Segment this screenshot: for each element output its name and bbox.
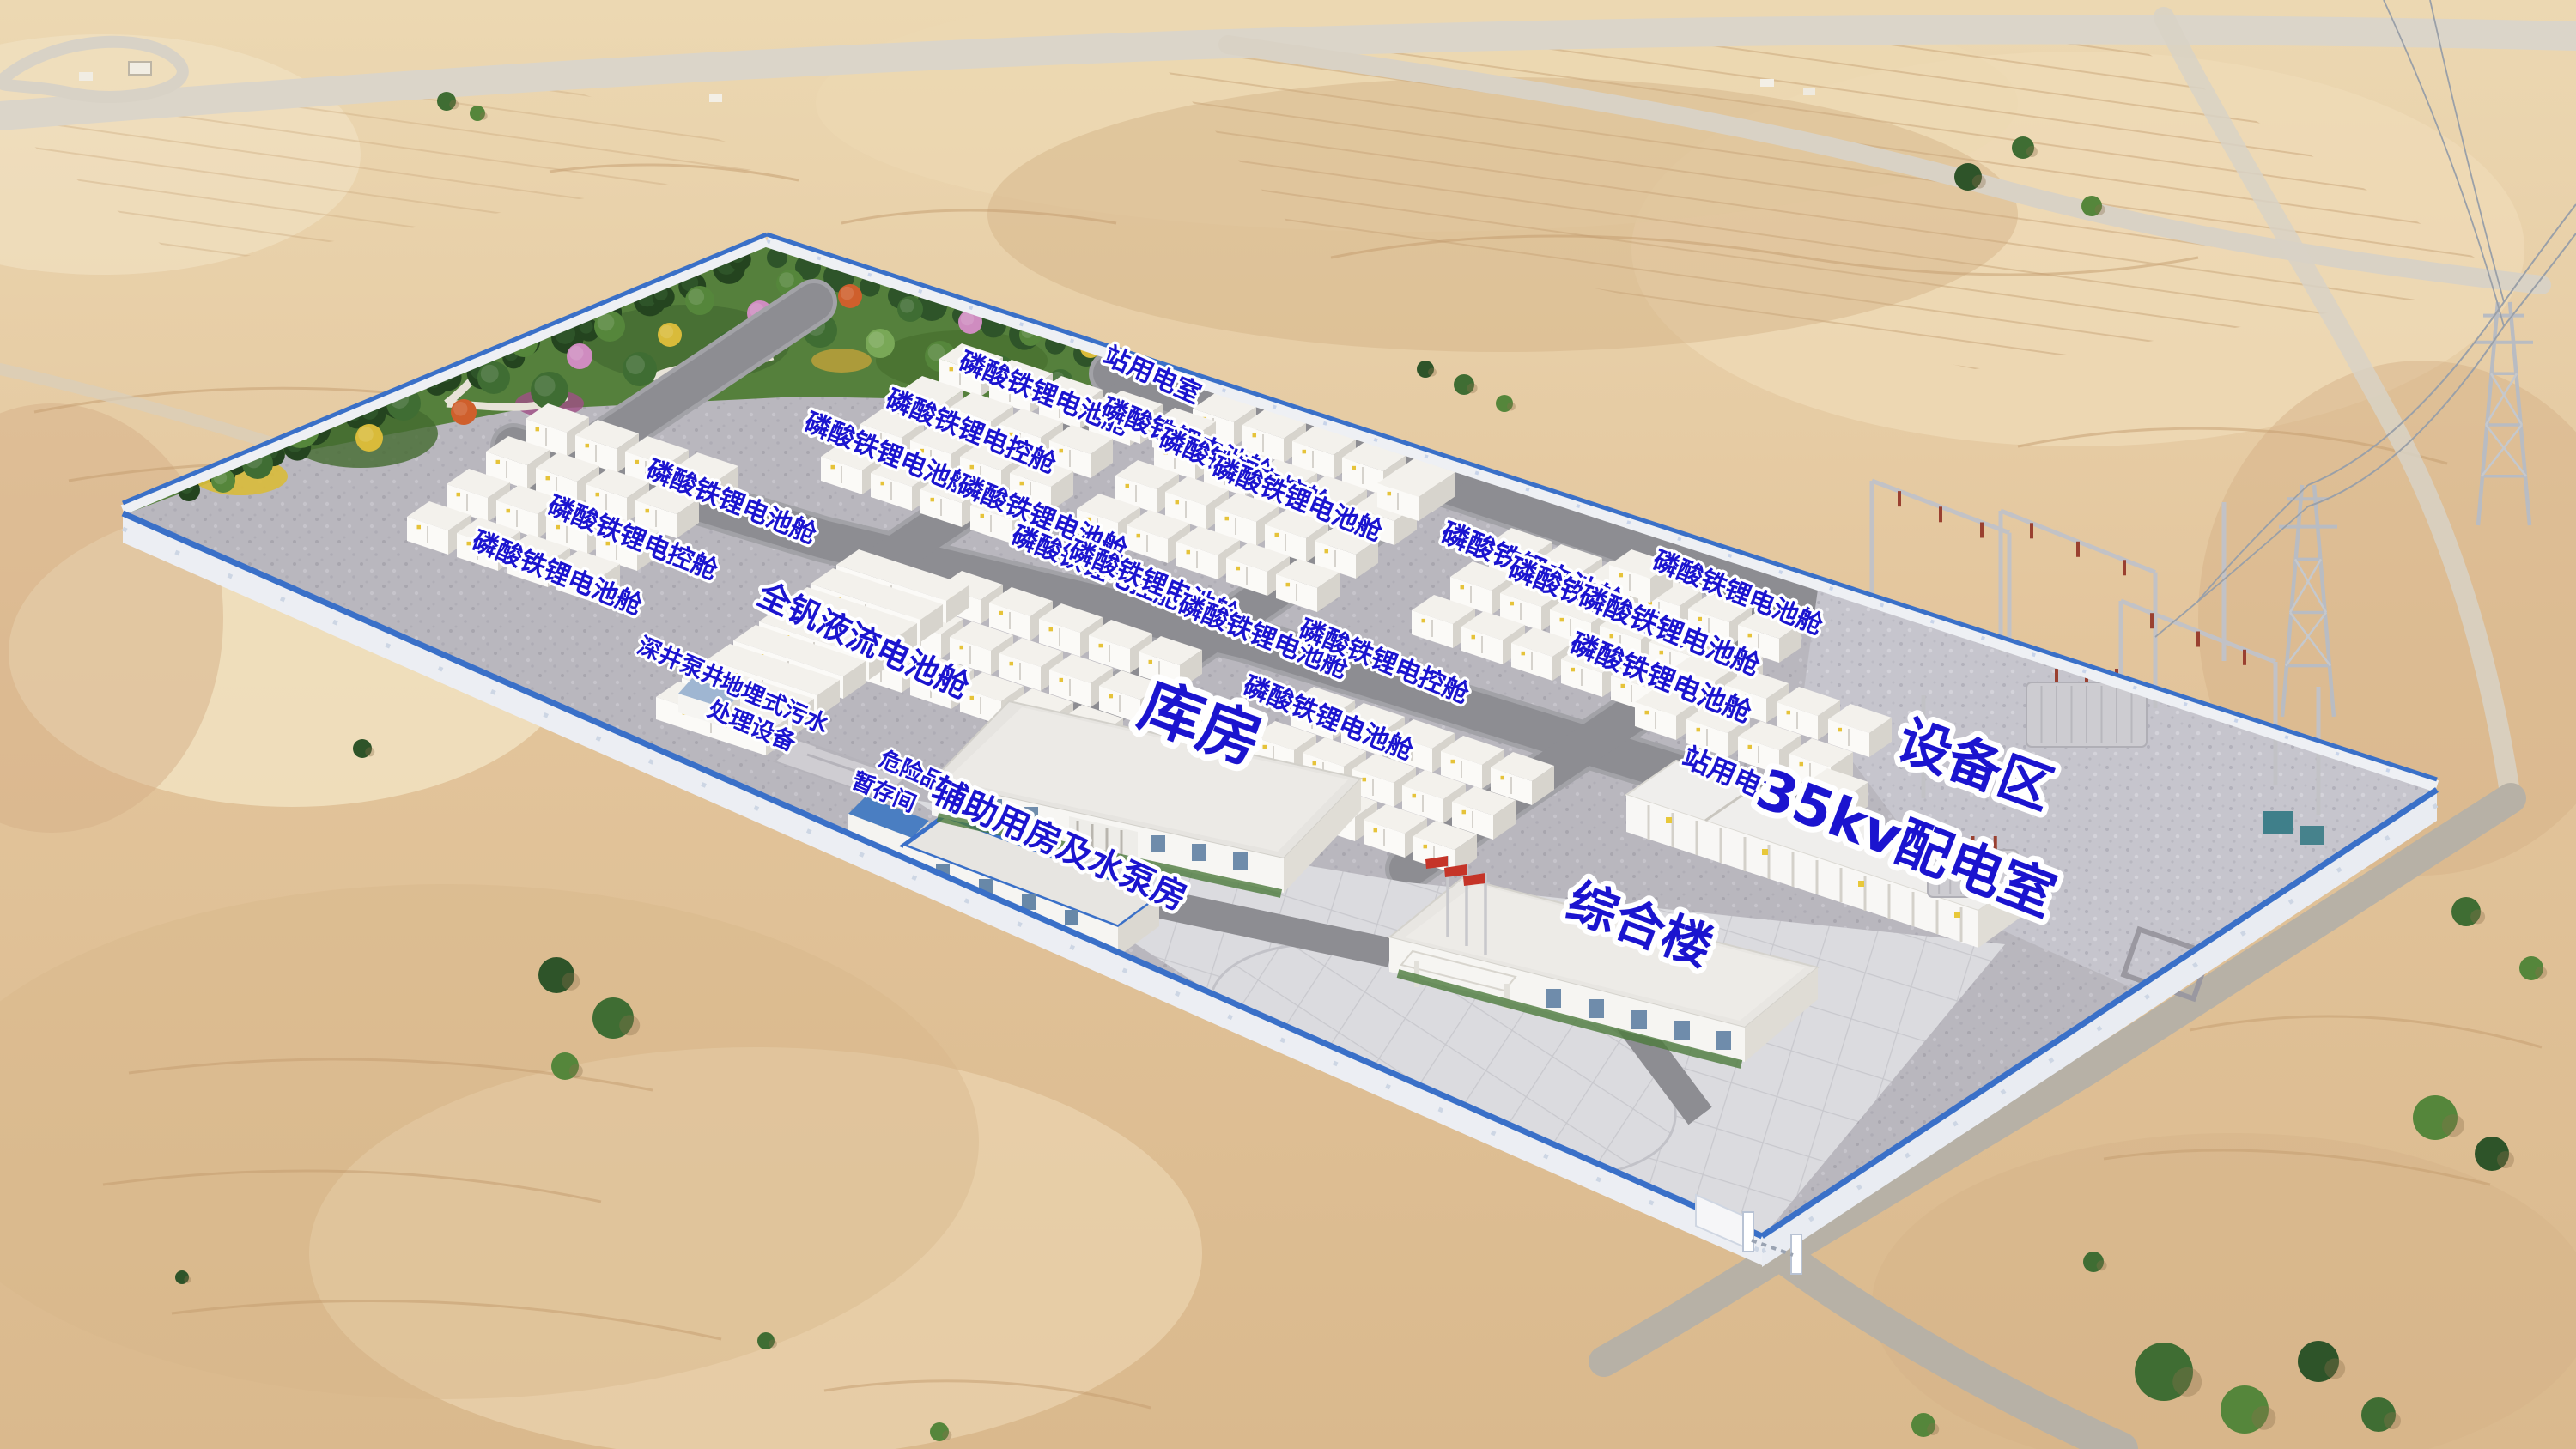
site-plan-svg: 磷酸铁锂电池舱 磷酸铁锂电控舱 磷酸铁锂电池舱 磷酸铁锂电池舱 磷酸铁锂电控舱 …: [0, 0, 2576, 1449]
aerial-site-rendering: 磷酸铁锂电池舱 磷酸铁锂电控舱 磷酸铁锂电池舱 磷酸铁锂电池舱 磷酸铁锂电控舱 …: [0, 0, 2576, 1449]
